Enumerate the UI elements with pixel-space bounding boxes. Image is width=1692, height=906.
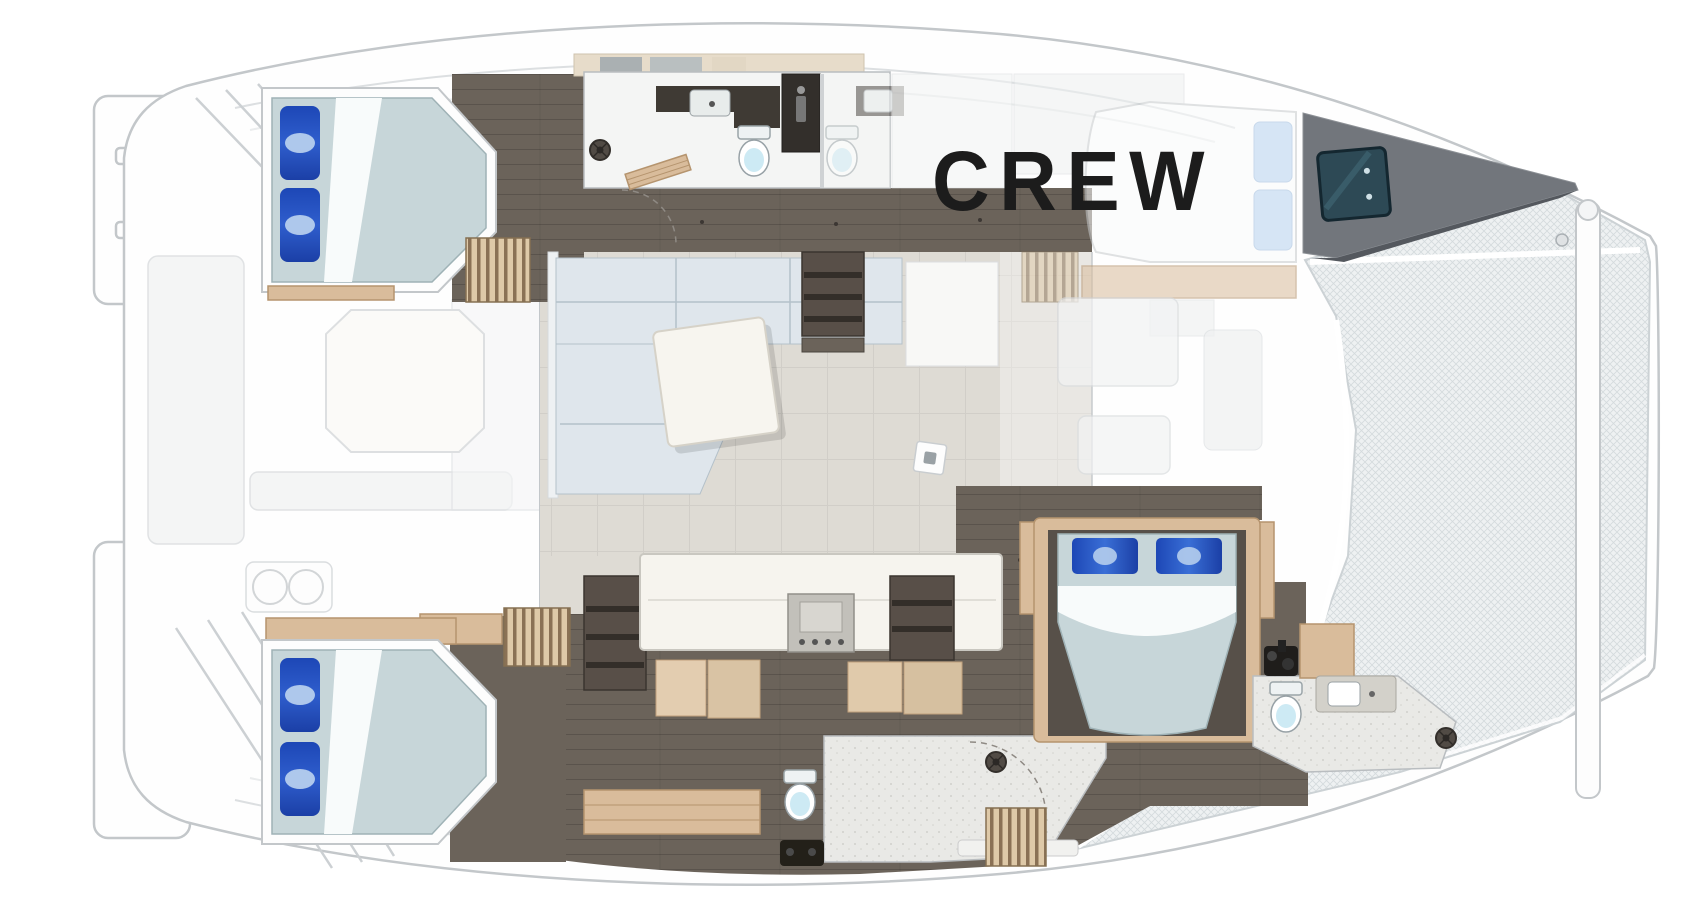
nav-cabinet-faded — [906, 262, 998, 366]
companionway-stairs-port — [466, 238, 530, 302]
companionway-stairs-galley — [504, 608, 570, 666]
bed-shelf — [268, 286, 394, 300]
sink-icon — [1328, 682, 1360, 706]
catamaran-floorplan: CREW — [0, 0, 1692, 906]
forestay-fitting-icon — [1556, 234, 1568, 246]
crew-sink-icon — [864, 90, 892, 112]
galley-cabinet — [656, 660, 706, 716]
crew-pillow — [1254, 122, 1292, 182]
galley-cabinet — [904, 662, 962, 714]
salon-table — [652, 316, 786, 455]
toilet-icon — [738, 126, 770, 176]
crew-pillow — [1254, 190, 1292, 250]
cockpit-grill-icon — [246, 562, 332, 612]
floorplan-canvas: CREW — [0, 0, 1692, 906]
bath-cabinet — [1300, 624, 1354, 678]
toilet-icon — [1270, 682, 1302, 732]
shower-drain-icon — [986, 752, 1006, 772]
crew-toilet-icon — [826, 126, 858, 176]
companionway-stairs-crew — [1022, 252, 1078, 302]
port-bathroom — [584, 72, 904, 189]
master-cabin — [1020, 518, 1274, 742]
galley-cabinet — [848, 662, 902, 712]
crew-shelf — [1082, 266, 1296, 298]
deck-hatch-icon — [1317, 147, 1391, 221]
cockpit-table — [326, 310, 484, 452]
cockpit-bench-left — [148, 256, 244, 544]
starboard-bathroom — [780, 736, 1106, 866]
bath-fixture-icon — [780, 840, 824, 866]
shower-drain-icon — [590, 140, 610, 160]
hatch-tile-icon — [913, 441, 947, 475]
companionway-stairs-master — [986, 808, 1046, 866]
deck-fitting-icon — [1436, 728, 1456, 748]
galley-cabinet — [708, 660, 760, 718]
hull-bench — [584, 790, 760, 834]
crew-label: CREW — [932, 134, 1214, 228]
shower-column — [782, 74, 820, 152]
port-aft-cabin-bed — [262, 88, 496, 300]
stove-icon — [788, 594, 854, 652]
toilet-icon — [784, 770, 816, 820]
